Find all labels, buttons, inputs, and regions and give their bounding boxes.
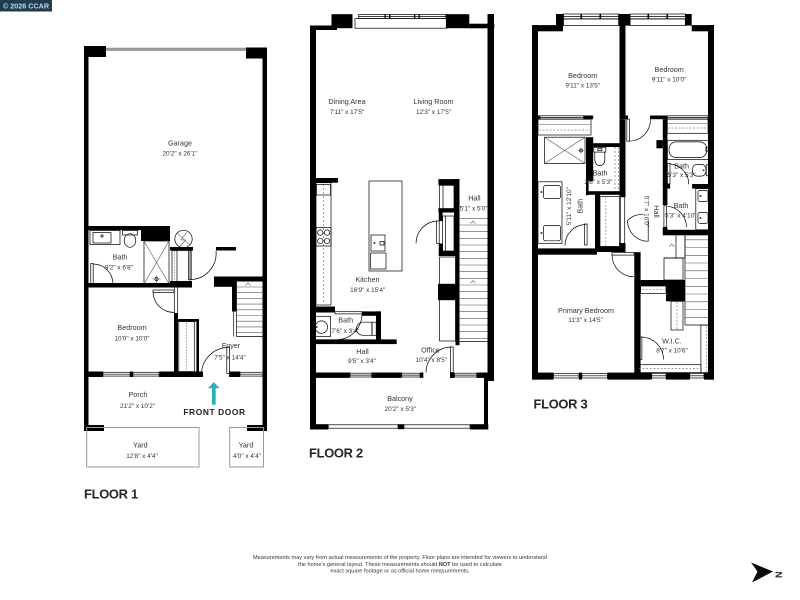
svg-text:20'2" x 5'3": 20'2" x 5'3": [385, 406, 417, 413]
svg-text:2'8" x 5'3": 2'8" x 5'3": [584, 179, 612, 186]
svg-text:FLOOR 2: FLOOR 2: [309, 446, 363, 461]
svg-text:5'3" x 4'10": 5'3" x 4'10": [665, 212, 697, 219]
svg-text:W.I.C.: W.I.C.: [662, 336, 682, 345]
svg-text:Hall: Hall: [652, 205, 661, 218]
svg-text:Kitchen: Kitchen: [356, 275, 380, 284]
svg-text:7'6" x 3'4": 7'6" x 3'4": [331, 328, 359, 335]
svg-text:Bath: Bath: [576, 199, 585, 214]
svg-text:Yard: Yard: [239, 441, 254, 450]
svg-text:7'5" x 14'4": 7'5" x 14'4": [214, 355, 246, 362]
svg-text:5'3" x 5'3": 5'3" x 5'3": [668, 172, 696, 179]
svg-text:Hall: Hall: [356, 347, 369, 356]
svg-text:Bedroom: Bedroom: [568, 71, 597, 80]
svg-text:Measurements may vary from act: Measurements may vary from actual measur…: [253, 555, 547, 561]
svg-text:FLOOR 1: FLOOR 1: [84, 487, 138, 502]
svg-text:Bedroom: Bedroom: [655, 65, 684, 74]
svg-text:Bath: Bath: [113, 253, 128, 262]
svg-text:9'5" x 3'4": 9'5" x 3'4": [348, 358, 376, 365]
svg-text:Bath: Bath: [674, 201, 689, 210]
svg-text:21'2" x 10'2": 21'2" x 10'2": [120, 403, 155, 410]
svg-text:10'0" x 10'0": 10'0" x 10'0": [114, 336, 149, 343]
svg-text:7'11" x 17'5": 7'11" x 17'5": [330, 109, 365, 116]
svg-text:exact square footage or as off: exact square footage or as official home…: [330, 568, 470, 574]
svg-text:Hall: Hall: [468, 193, 481, 202]
svg-text:11'3" x 14'5": 11'3" x 14'5": [568, 317, 603, 324]
svg-text:Yard: Yard: [133, 441, 148, 450]
svg-text:Bath: Bath: [674, 162, 689, 171]
svg-text:Porch: Porch: [129, 390, 148, 399]
svg-text:Garage: Garage: [168, 139, 192, 148]
svg-text:9'11" x 10'0": 9'11" x 10'0": [652, 77, 687, 84]
svg-text:Living Room: Living Room: [414, 97, 454, 106]
svg-text:Foyer: Foyer: [222, 341, 241, 350]
svg-text:20'2" x 26'1": 20'2" x 26'1": [162, 151, 197, 158]
svg-text:Primary Bedroom: Primary Bedroom: [558, 306, 614, 315]
svg-text:16'9" x 15'4": 16'9" x 15'4": [350, 287, 385, 294]
svg-text:12'8" x 4'4": 12'8" x 4'4": [126, 453, 158, 460]
svg-text:Balcony: Balcony: [387, 394, 413, 403]
svg-text:4'0" x 4'4": 4'0" x 4'4": [233, 453, 261, 460]
svg-text:Bath: Bath: [593, 168, 608, 177]
svg-text:5'1" x 5'0": 5'1" x 5'0": [460, 205, 488, 212]
svg-text:Office: Office: [421, 346, 440, 355]
svg-text:© 2026 CCAR: © 2026 CCAR: [3, 2, 50, 11]
svg-text:FLOOR 3: FLOOR 3: [534, 397, 588, 412]
svg-text:Bath: Bath: [338, 316, 353, 325]
svg-text:N: N: [774, 572, 784, 579]
svg-text:FRONT DOOR: FRONT DOOR: [183, 407, 245, 417]
svg-text:Dining Area: Dining Area: [328, 97, 365, 106]
svg-text:10'4" x 8'5": 10'4" x 8'5": [416, 357, 448, 364]
svg-text:12'3" x 17'5": 12'3" x 17'5": [416, 109, 451, 116]
svg-text:9'2" x 6'8": 9'2" x 6'8": [105, 265, 133, 272]
svg-text:9'11" x 13'5": 9'11" x 13'5": [565, 83, 600, 90]
svg-text:8'7" x 10'6": 8'7" x 10'6": [656, 348, 688, 355]
svg-text:Bedroom: Bedroom: [117, 323, 146, 332]
svg-text:5'11" x 12'10": 5'11" x 12'10": [566, 187, 573, 225]
svg-text:the home's general layout. Th: the home's general layout. These measure…: [298, 562, 502, 568]
